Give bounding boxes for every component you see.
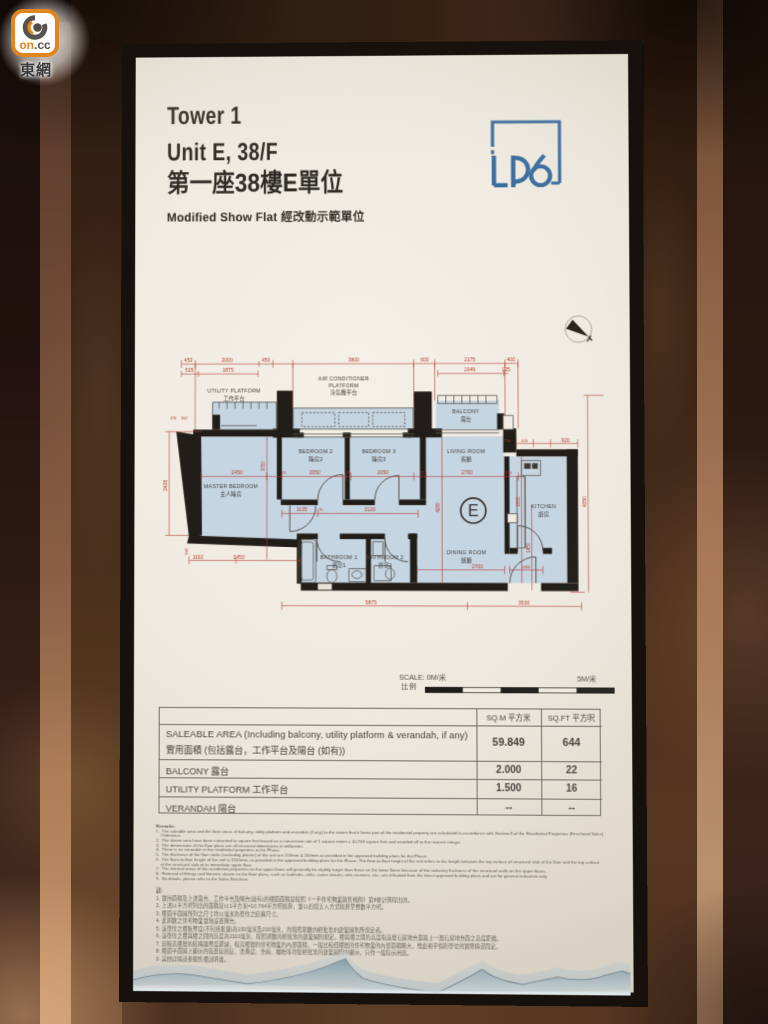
svg-text:冷氣機平台: 冷氣機平台	[331, 389, 358, 397]
svg-text:PLATFORM: PLATFORM	[329, 383, 359, 389]
svg-text:1192: 1192	[193, 555, 204, 561]
svg-text:4350: 4350	[582, 496, 588, 507]
svg-text:BATHROOM 1: BATHROOM 1	[321, 555, 358, 561]
svg-text:工作平台: 工作平台	[224, 394, 245, 402]
svg-text:150: 150	[505, 471, 513, 476]
svg-text:E: E	[468, 504, 479, 521]
svg-text:浴室1: 浴室1	[332, 561, 346, 569]
svg-text:3800: 3800	[349, 358, 360, 364]
svg-text:飯廳: 飯廳	[461, 556, 473, 564]
svg-text:2450: 2450	[234, 555, 245, 561]
svg-text:750: 750	[504, 439, 512, 444]
svg-text:920: 920	[562, 439, 571, 445]
svg-text:2450: 2450	[232, 471, 243, 477]
svg-text:1135: 1135	[297, 508, 308, 514]
svg-text:2049: 2049	[465, 368, 476, 374]
svg-text:100: 100	[521, 439, 529, 444]
svg-text:廚房: 廚房	[539, 511, 550, 519]
svg-text:2700: 2700	[472, 564, 483, 570]
svg-text:2050: 2050	[310, 471, 321, 477]
svg-text:3050: 3050	[261, 461, 266, 472]
svg-text:450: 450	[185, 358, 194, 364]
svg-text:浴室2: 浴室2	[378, 561, 392, 569]
svg-text:2800: 2800	[516, 496, 521, 507]
svg-text:BEDROOM 2: BEDROOM 2	[299, 450, 333, 456]
svg-text:2700: 2700	[462, 471, 473, 477]
svg-text:LIVING ROOM: LIVING ROOM	[447, 450, 485, 456]
svg-text:MASTER BEDROOM: MASTER BEDROOM	[204, 485, 258, 491]
svg-text:露台: 露台	[461, 416, 472, 424]
svg-text:2050: 2050	[378, 471, 389, 477]
svg-text:3530: 3530	[519, 600, 531, 606]
svg-text:1875: 1875	[223, 368, 234, 374]
svg-text:1450: 1450	[526, 542, 531, 553]
svg-text:3438: 3438	[164, 480, 170, 491]
svg-text:BEDROOM 3: BEDROOM 3	[362, 450, 396, 456]
svg-text:3120: 3120	[365, 508, 376, 514]
svg-text:2175: 2175	[465, 358, 476, 364]
svg-text:客廳: 客廳	[461, 456, 473, 464]
svg-text:主人睡房: 主人睡房	[221, 491, 243, 499]
svg-text:BALCONY: BALCONY	[453, 410, 480, 416]
svg-text:睡房2: 睡房2	[309, 456, 323, 464]
svg-text:UTILITY PLATFORM: UTILITY PLATFORM	[208, 389, 261, 395]
svg-text:KITCHEN: KITCHEN	[532, 505, 557, 511]
svg-text:BATHROOM 2: BATHROOM 2	[367, 555, 404, 561]
svg-text:125: 125	[502, 368, 511, 374]
svg-text:DINING ROOM: DINING ROOM	[447, 550, 486, 556]
svg-text:5875: 5875	[366, 600, 377, 606]
svg-text:302: 302	[181, 416, 188, 421]
svg-text:450: 450	[262, 358, 271, 364]
svg-text:4280: 4280	[436, 502, 441, 513]
svg-text:400: 400	[507, 358, 516, 364]
svg-text:1400: 1400	[522, 564, 532, 569]
svg-text:600: 600	[421, 358, 430, 364]
svg-text:睡房3: 睡房3	[372, 456, 386, 464]
svg-text:370: 370	[170, 416, 177, 421]
svg-text:920: 920	[184, 547, 189, 554]
svg-text:525: 525	[186, 368, 195, 374]
svg-text:2000: 2000	[222, 358, 233, 364]
svg-text:AIR CONDITIONER: AIR CONDITIONER	[319, 377, 370, 383]
